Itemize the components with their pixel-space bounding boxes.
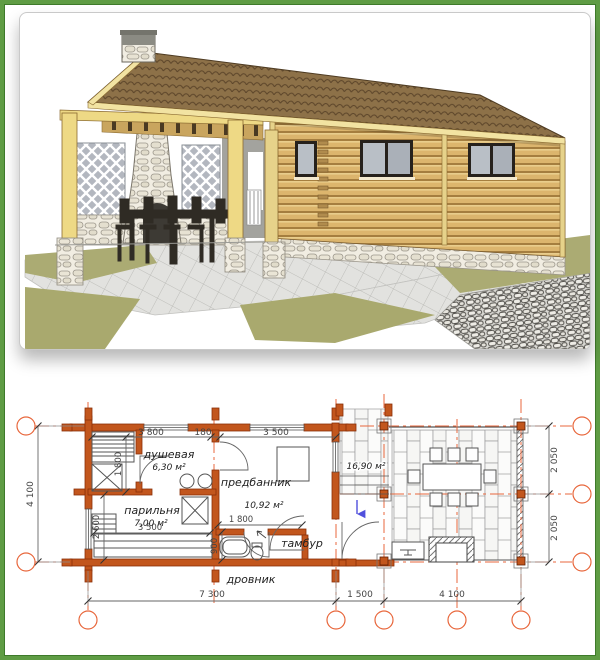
dim-top-2: 180 [194,428,211,438]
dim-right-1: 2 050 [550,447,560,473]
label-steam-area: 7,00 м² [134,519,168,529]
label-anteroom: предбанник [221,476,292,489]
dim-top-1: 3 800 [138,428,164,438]
label-vestibule: тамбур [281,537,323,550]
terrace-post-corner [265,130,278,250]
window-1 [294,141,319,180]
dim-bottom-1: 7 300 [199,590,225,600]
label-woodshed: дровник [226,573,276,586]
dim-inner-1800: 1 800 [114,452,124,476]
pillar-base-corner [263,242,285,278]
washbasin-2 [198,474,212,488]
dim-inner-1800b: 1 800 [229,515,253,525]
terrace-railing [247,190,261,225]
terrace-post-middle [228,120,243,246]
dim-top-3: 3 500 [263,428,289,438]
page: { "page": { "frame_border_color": "#5f9c… [0,0,600,660]
vestibule-pointer-arrow [257,531,266,538]
floor-plan-drawing: 3 800 180 3 500 7 300 1 500 4 100 4 100 … [4,364,600,664]
dim-right-2: 2 050 [550,515,560,541]
pillar-base-middle [225,238,245,272]
terrace-post-left [62,113,77,242]
dim-left-outer: 4 100 [26,481,36,507]
door-anteroom [220,442,248,470]
stove-steam-room [182,497,208,524]
house-3d-render [20,13,590,349]
dim-bottom-2: 1 500 [347,590,373,600]
label-shower-area: 6,30 м² [152,463,186,473]
plan-grill [429,537,474,562]
dim-inner-900: 900 [210,538,220,554]
corner-board-right [560,141,565,257]
label-anteroom-area: 10,92 м² [244,501,283,511]
dim-inner-2600: 2 600 [92,515,102,539]
window-3 [467,143,517,180]
washbasin-1 [180,474,194,488]
render-card [19,12,591,350]
dim-bottom-3: 4 100 [439,590,465,600]
chimney [120,30,157,62]
log-house [270,118,565,275]
trim-board-middle [442,133,447,245]
lattice-panel-left [75,143,125,215]
floor-plan: 3 800 180 3 500 7 300 1 500 4 100 4 100 … [4,364,600,664]
label-shower: душевая [143,448,195,461]
label-terrace-area: 16,90 м² [346,462,385,472]
sauna-bench-hatch [92,432,134,462]
label-steam-room: парильня [124,504,180,517]
side-table [392,542,424,559]
door-bath [244,532,269,557]
window-2 [359,140,415,180]
door-entry [342,522,379,559]
